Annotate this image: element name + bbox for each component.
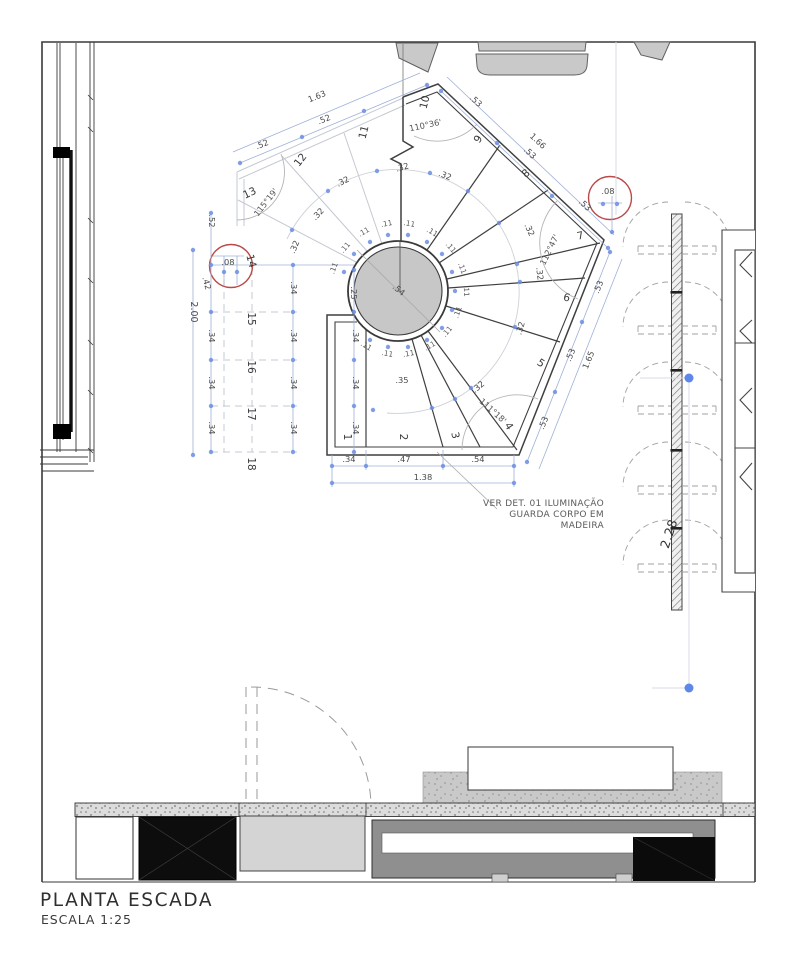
glass-tick-marks [88,95,93,453]
sofa-top [396,42,670,75]
cabinet-gray [240,816,365,871]
dim-node [453,289,457,293]
page-scale: ESCALA 1:25 [41,912,132,927]
dim-node [406,233,410,237]
dim-node [512,464,516,468]
dim-node [330,464,334,468]
red-detail-circle-right [589,177,632,220]
dim-node [439,89,443,93]
door-swing-arc [623,362,668,407]
dim-node [518,280,522,284]
plan-label: .08 [601,186,614,196]
plan-label: .53 [563,347,577,363]
dim-node [362,109,366,113]
plan-label: .08 [221,257,234,267]
dim-node [425,83,429,87]
plan-label: .32 [334,174,350,189]
dim-node [606,246,610,250]
dim-node [364,464,368,468]
dim-node [352,252,356,256]
dim-node [441,464,445,468]
slider-handle-top [53,147,70,158]
dim-node [450,270,454,274]
plan-label: .54 [471,454,484,464]
dim-node [352,358,356,362]
dim-node [497,221,501,225]
dim-node [371,408,375,412]
plan-label: 1.63 [306,88,327,104]
plan-label: .47 [397,454,410,464]
dim-node [238,161,242,165]
door-swing-arc [623,282,668,327]
console-foot [616,874,632,882]
plan-label: .11 [402,348,415,359]
plan-label: .11 [403,218,416,229]
note-text-line2: GUARDA CORPO EM [509,510,604,520]
plan-label: .53 [522,145,538,161]
plan-label: .32 [395,161,410,174]
window-slider [40,42,94,471]
reference-point [685,374,694,383]
plan-label: 7 [576,230,585,243]
dim-node [291,358,295,362]
plan-label: .52 [207,214,217,227]
dim-node [515,262,519,266]
dim-node [368,240,372,244]
guard-wall [671,214,683,610]
plan-label: .34 [207,376,217,389]
dim-node [553,390,557,394]
dim-node [326,189,330,193]
plan-label: .11 [380,218,393,229]
dim-node [191,248,195,252]
dim-node [386,233,390,237]
note-text-line1: VER DET. 01 ILUMINAÇÃO [483,498,604,509]
plan-label: 3 [448,431,461,440]
dim-node [300,135,304,139]
dim-node [209,404,213,408]
dim-node [330,481,334,485]
dim-node [430,406,434,410]
dim-node [615,202,619,206]
plan-label: 110°36' [408,117,442,134]
plan-label: .11 [456,261,468,275]
dim-node [222,270,226,274]
plan-label: .11 [462,285,471,297]
plan-label: 2.00 [188,301,199,322]
dim-node [291,263,295,267]
dim-node [610,230,614,234]
plan-label: .32 [470,379,487,395]
plan-label: .32 [522,222,537,238]
plan-label: 17 [245,407,257,420]
dim-line [240,85,427,163]
plan-label: .34 [289,329,299,342]
plan-label: .34 [289,376,299,389]
counter-top [75,803,755,817]
dim-node [352,404,356,408]
plan-label: 1.38 [414,472,432,482]
dim-node [466,189,470,193]
dim-node [608,250,612,254]
plan-label: 6 [562,292,571,305]
plan-label: .32 [437,168,453,182]
note-text-line3: MADEIRA [561,521,605,531]
plan-label: 2 [397,434,409,441]
plan-label: .53 [536,415,550,431]
plan-label: .42 [200,276,213,291]
dim-node [291,310,295,314]
dim-node [191,453,195,457]
dim-node [290,228,294,232]
dim-node [428,171,432,175]
plan-label: 11 [357,124,372,140]
drawing-sheet: 123456789101112131415161718110°36'112°47… [0,0,800,963]
dim-node [352,268,356,272]
plan-label: .11 [444,240,458,255]
closet-right [722,230,755,592]
door-swing-bottom [246,687,257,800]
page-title: PLANTA ESCADA [40,890,213,911]
plan-label: .35 [395,375,408,385]
dim-node [342,270,346,274]
plan-label: 15 [245,312,257,325]
sofa-left-arm [396,43,438,72]
dim-node [209,263,213,267]
plan-label: .11 [381,348,394,359]
dim-node [352,310,356,314]
dim-node [291,404,295,408]
bottom-furniture [75,687,755,882]
plan-label: 18 [245,457,257,470]
slider-handle-bottom [53,424,71,439]
dimension-layer: 123456789101112131415161718110°36'112°47… [188,42,694,693]
sofa-right-arm [634,42,670,60]
dim-node [209,310,213,314]
plan-label: 1 [341,434,353,441]
plan-label: .34 [351,421,361,434]
plan-label: .32 [287,239,301,255]
dim-node [209,450,213,454]
sofa-back [478,42,586,51]
door-swing-arc [623,442,668,487]
sofa-seat [476,54,588,75]
dim-node [601,202,605,206]
dim-node [453,397,457,401]
dim-node [209,358,213,362]
plan-label: .11 [356,225,371,239]
plan-label: 10 [418,94,433,110]
dim-node [440,252,444,256]
dim-node [580,320,584,324]
plan-label: .25 [349,286,359,299]
plan-label: .32 [534,266,546,280]
plan-label: 14 [243,253,258,269]
plan-label: 112°47' [538,233,561,267]
dim-node [550,194,554,198]
plan-label: .11 [327,261,339,275]
plan-label: .34 [289,281,299,294]
plan-label: .34 [351,329,361,342]
door-swing-arc [623,202,668,247]
plan-label: .34 [351,376,361,389]
cabinet-white [76,817,133,879]
plan-label: .53 [591,279,605,295]
console-foot [492,874,508,882]
plan-label: .11 [451,305,463,319]
dim-node [235,270,239,274]
plan-label: 8 [520,167,533,180]
plan-label: .11 [338,240,352,255]
plan-label: 16 [245,360,257,374]
dim-node [425,240,429,244]
plan-label: .34 [207,421,217,434]
fireplace-box [468,747,673,790]
dim-node [291,450,295,454]
plan-label: .34 [342,454,355,464]
plan-label: 1.65 [580,349,596,370]
dim-node [495,141,499,145]
plan-label: .32 [310,206,326,222]
plan-label: .53 [577,197,593,213]
plan-label: .53 [468,93,484,109]
plan-label: .11 [425,225,440,239]
plan-label: .52 [254,137,270,151]
plan-label: .34 [207,329,217,342]
reference-point [685,684,694,693]
dim-node [525,460,529,464]
dim-node [512,481,516,485]
plan-label: .34 [289,421,299,434]
dim-node [375,169,379,173]
plan-label: .52 [316,112,332,126]
